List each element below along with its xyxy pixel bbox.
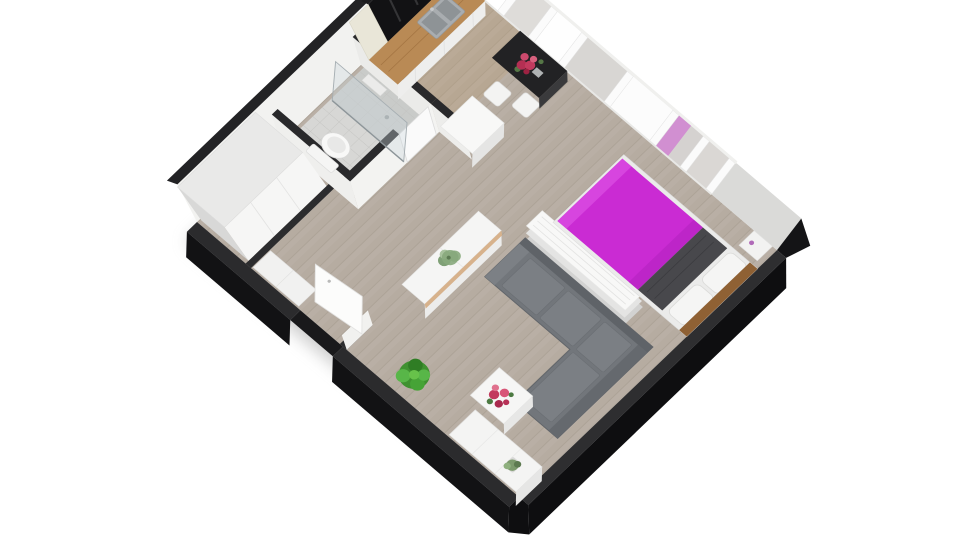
apartment-plan: [134, 0, 833, 540]
floorplan-figure: [0, 0, 960, 540]
floorplan-canvas: [0, 0, 960, 540]
